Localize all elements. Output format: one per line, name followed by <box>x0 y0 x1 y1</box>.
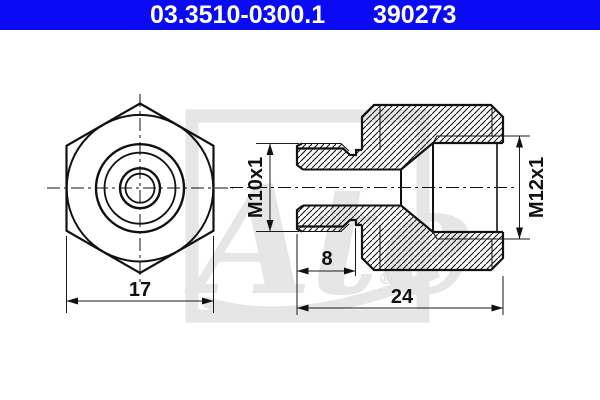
arrow-up <box>516 136 523 148</box>
screenshot-root: 03.3510-0300.1 390273 Ate ® <box>0 0 600 400</box>
dim-label-m12x1: M12x1 <box>526 157 548 218</box>
dimension-female-thread: M12x1 <box>503 136 548 239</box>
technical-drawing: Ate ® 17 <box>0 0 600 400</box>
dim-label-8: 8 <box>321 248 332 270</box>
dim-label-24: 24 <box>391 286 414 308</box>
arrow-right <box>492 305 504 312</box>
arrow-up <box>267 144 274 156</box>
arrow-down <box>516 228 523 240</box>
inner-ring-circle <box>105 153 176 224</box>
dim-label-17: 17 <box>129 279 151 301</box>
arrow-left <box>67 298 79 305</box>
dim-label-m10x1: M10x1 <box>245 157 267 218</box>
